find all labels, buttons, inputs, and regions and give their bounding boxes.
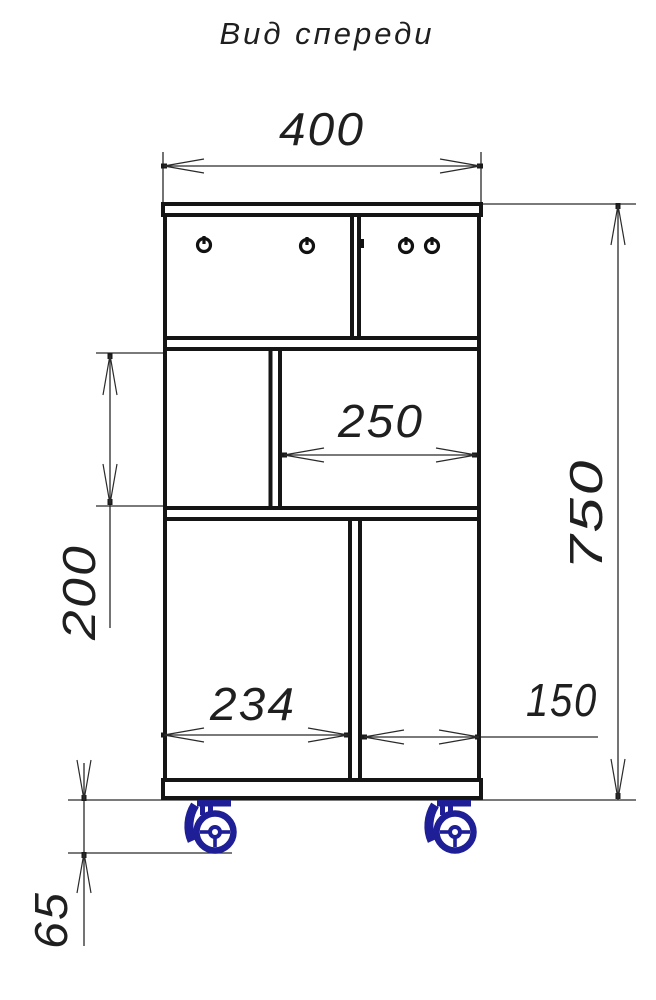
- caster-wheel-icon: [189, 800, 234, 851]
- top-section-divider: [352, 217, 364, 336]
- screw-knob-icon: [198, 236, 211, 252]
- dim-label-middle-right-width: 250: [337, 395, 424, 447]
- top-panel: [163, 204, 481, 215]
- dim-label-middle-left-height: 200: [53, 544, 105, 641]
- dimension-400: 400: [161, 103, 483, 173]
- shelf-lower: [165, 508, 479, 519]
- dim-label-overall-width: 400: [279, 103, 365, 155]
- drawing-canvas: Вид спереди: [0, 0, 656, 1000]
- caster-right: [429, 800, 474, 851]
- top-door-knobs: [198, 236, 439, 253]
- front-view-drawing: Вид спереди: [0, 0, 656, 1000]
- screw-knob-icon: [426, 237, 439, 253]
- dim-label-caster-height: 65: [25, 891, 77, 949]
- screw-knob-icon: [400, 237, 413, 253]
- screw-knob-icon: [301, 237, 314, 253]
- dimension-250: 250: [281, 395, 478, 462]
- dimension-200: 200: [53, 353, 117, 641]
- bottom-panel: [163, 780, 481, 798]
- caster-wheel-icon: [429, 800, 474, 851]
- door-latch-mark: [360, 239, 364, 248]
- dimension-234: 234: [161, 678, 350, 742]
- dim-label-overall-height: 750: [560, 458, 612, 570]
- shelf-upper: [165, 338, 479, 349]
- dim-label-bottom-right-width: 150: [526, 674, 598, 726]
- bottom-section-divider: [350, 519, 360, 780]
- caster-left: [189, 800, 234, 851]
- drawing-title: Вид спереди: [220, 16, 435, 51]
- middle-section-divider: [271, 350, 281, 508]
- dimension-65: 65: [25, 760, 91, 949]
- dim-label-bottom-left-width: 234: [209, 678, 296, 730]
